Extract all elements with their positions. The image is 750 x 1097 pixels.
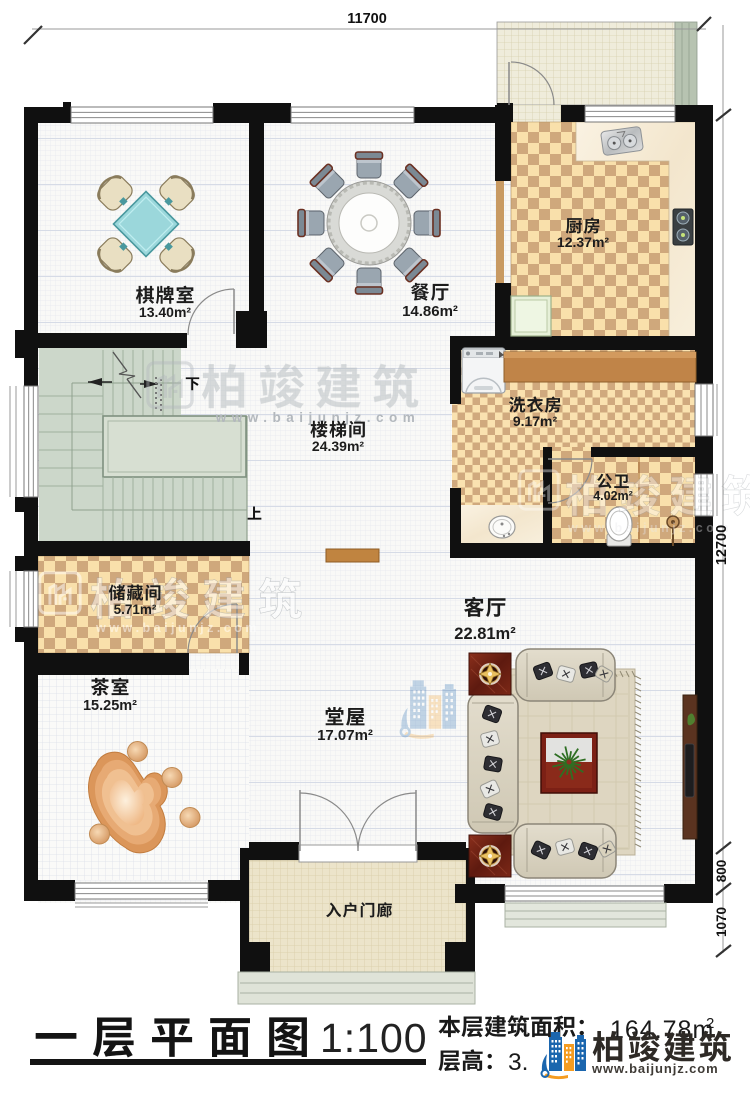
svg-text:w w w . b a i j u n j z . c o: w w w . b a i j u n j z . c o m bbox=[95, 621, 256, 635]
svg-text:164.78m: 164.78m bbox=[610, 1016, 714, 1044]
svg-text:1070: 1070 bbox=[714, 907, 729, 937]
svg-text:2: 2 bbox=[706, 1015, 714, 1032]
svg-text:15.25m²: 15.25m² bbox=[83, 698, 137, 714]
svg-text:24.39m²: 24.39m² bbox=[312, 438, 364, 454]
svg-text:3.: 3. bbox=[508, 1049, 528, 1076]
svg-text:22.81m²: 22.81m² bbox=[454, 625, 516, 643]
svg-text:17.07m²: 17.07m² bbox=[317, 727, 373, 744]
svg-text:w w w . b a i j u n j z . c o: w w w . b a i j u n j z . c o m bbox=[567, 521, 728, 535]
svg-text:9.17m²: 9.17m² bbox=[513, 413, 558, 429]
svg-text:12.37m²: 12.37m² bbox=[557, 234, 609, 250]
svg-text:11700: 11700 bbox=[347, 11, 387, 27]
svg-text:1:100: 1:100 bbox=[320, 1015, 428, 1061]
svg-text:13.40m²: 13.40m² bbox=[139, 304, 191, 320]
svg-text:12700: 12700 bbox=[714, 525, 730, 565]
svg-text:4.02m²: 4.02m² bbox=[593, 489, 633, 503]
svg-text:800: 800 bbox=[714, 860, 729, 883]
svg-text:www.baijunjz.com: www.baijunjz.com bbox=[591, 1061, 719, 1076]
svg-text:14.86m²: 14.86m² bbox=[402, 303, 458, 320]
svg-text:5.71m²: 5.71m² bbox=[114, 602, 157, 617]
svg-text:www.baijunjz.com: www.baijunjz.com bbox=[215, 410, 421, 425]
